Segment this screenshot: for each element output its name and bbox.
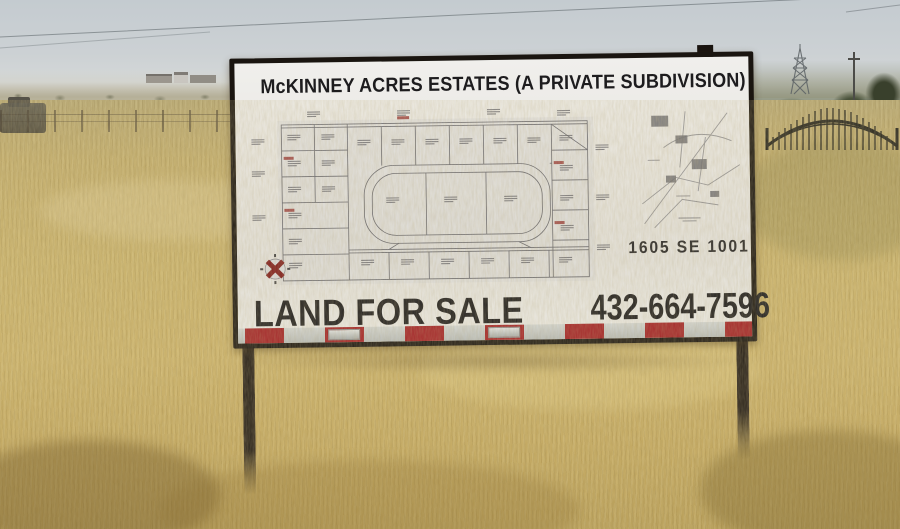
vicinity-location-map <box>635 107 743 230</box>
roadside-land-sale-photo: McKINNEY ACRES ESTATES (A PRIVATE SUBDIV… <box>0 0 900 529</box>
sign-title: McKINNEY ACRES ESTATES (A PRIVATE SUBDIV… <box>260 70 723 99</box>
mounting-plate <box>328 329 360 340</box>
sign-board: McKINNEY ACRES ESTATES (A PRIVATE SUBDIV… <box>229 51 757 348</box>
mounting-plate <box>488 327 520 338</box>
utility-pole-crossarm <box>848 58 860 60</box>
sign-right-column: 1605 SE 1001 <box>631 104 752 286</box>
arched-metal-gate <box>764 94 900 152</box>
land-for-sale-sign: McKINNEY ACRES ESTATES (A PRIVATE SUBDIV… <box>229 51 761 478</box>
sign-address: 1605 SE 1001 <box>624 236 753 258</box>
subdivision-plat-map <box>247 104 619 289</box>
transmission-tower-icon <box>786 44 814 96</box>
wire-fence <box>0 110 235 132</box>
sign-post-right <box>736 331 750 459</box>
